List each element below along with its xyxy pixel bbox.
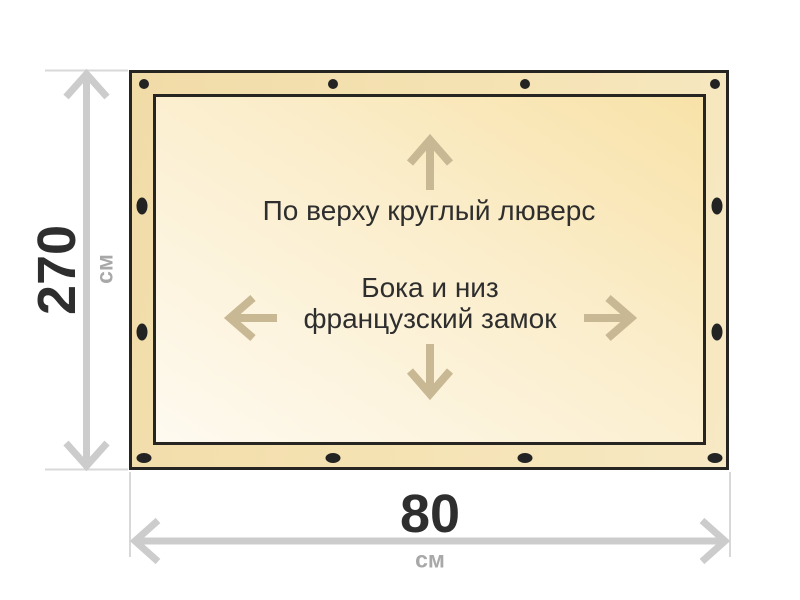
sides-bottom-annotation-line2: французский замок [304,303,557,334]
height-value: 270 [26,225,88,315]
arrow-down-icon [410,344,450,394]
height-unit: см [92,254,119,284]
arrow-left-icon [230,298,277,338]
arrow-up-icon [410,140,450,190]
width-value: 80 [400,483,460,545]
arrow-right-icon [584,298,631,338]
diagram-canvas: По верху круглый люверс Бока и низ франц… [0,0,800,600]
sides-bottom-annotation: Бока и низ французский замок [304,272,557,334]
width-unit: см [415,547,445,574]
top-edge-annotation: По верху круглый люверс [263,195,596,227]
sides-bottom-annotation-line1: Бока и низ [304,272,557,303]
